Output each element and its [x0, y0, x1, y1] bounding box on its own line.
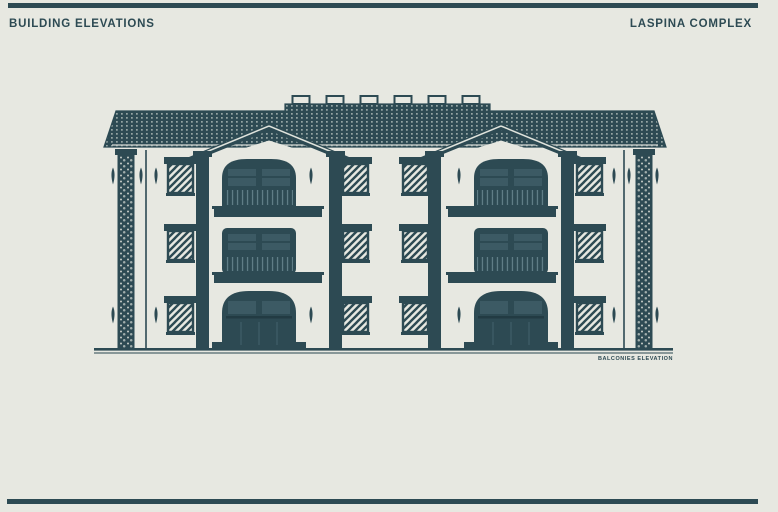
drawing-caption: BALCONIES ELEVATION: [560, 356, 673, 362]
roof-vents: [293, 96, 480, 104]
lattice-column-center-right: [399, 157, 432, 335]
lattice-column-center-left: [339, 157, 372, 335]
ground-line: [94, 348, 673, 354]
bottom-rule: [7, 499, 758, 504]
balcony-bay-right: [421, 124, 581, 351]
building-elevation-drawing: [0, 0, 778, 512]
lattice-column-outer-right: [573, 157, 606, 335]
corner-pilaster-right: [633, 149, 655, 350]
lattice-column-outer-left: [164, 157, 197, 335]
corner-pilaster-left: [115, 149, 137, 350]
roof: [104, 96, 666, 147]
balcony-bay-left: [189, 124, 349, 351]
facade: [111, 124, 658, 351]
